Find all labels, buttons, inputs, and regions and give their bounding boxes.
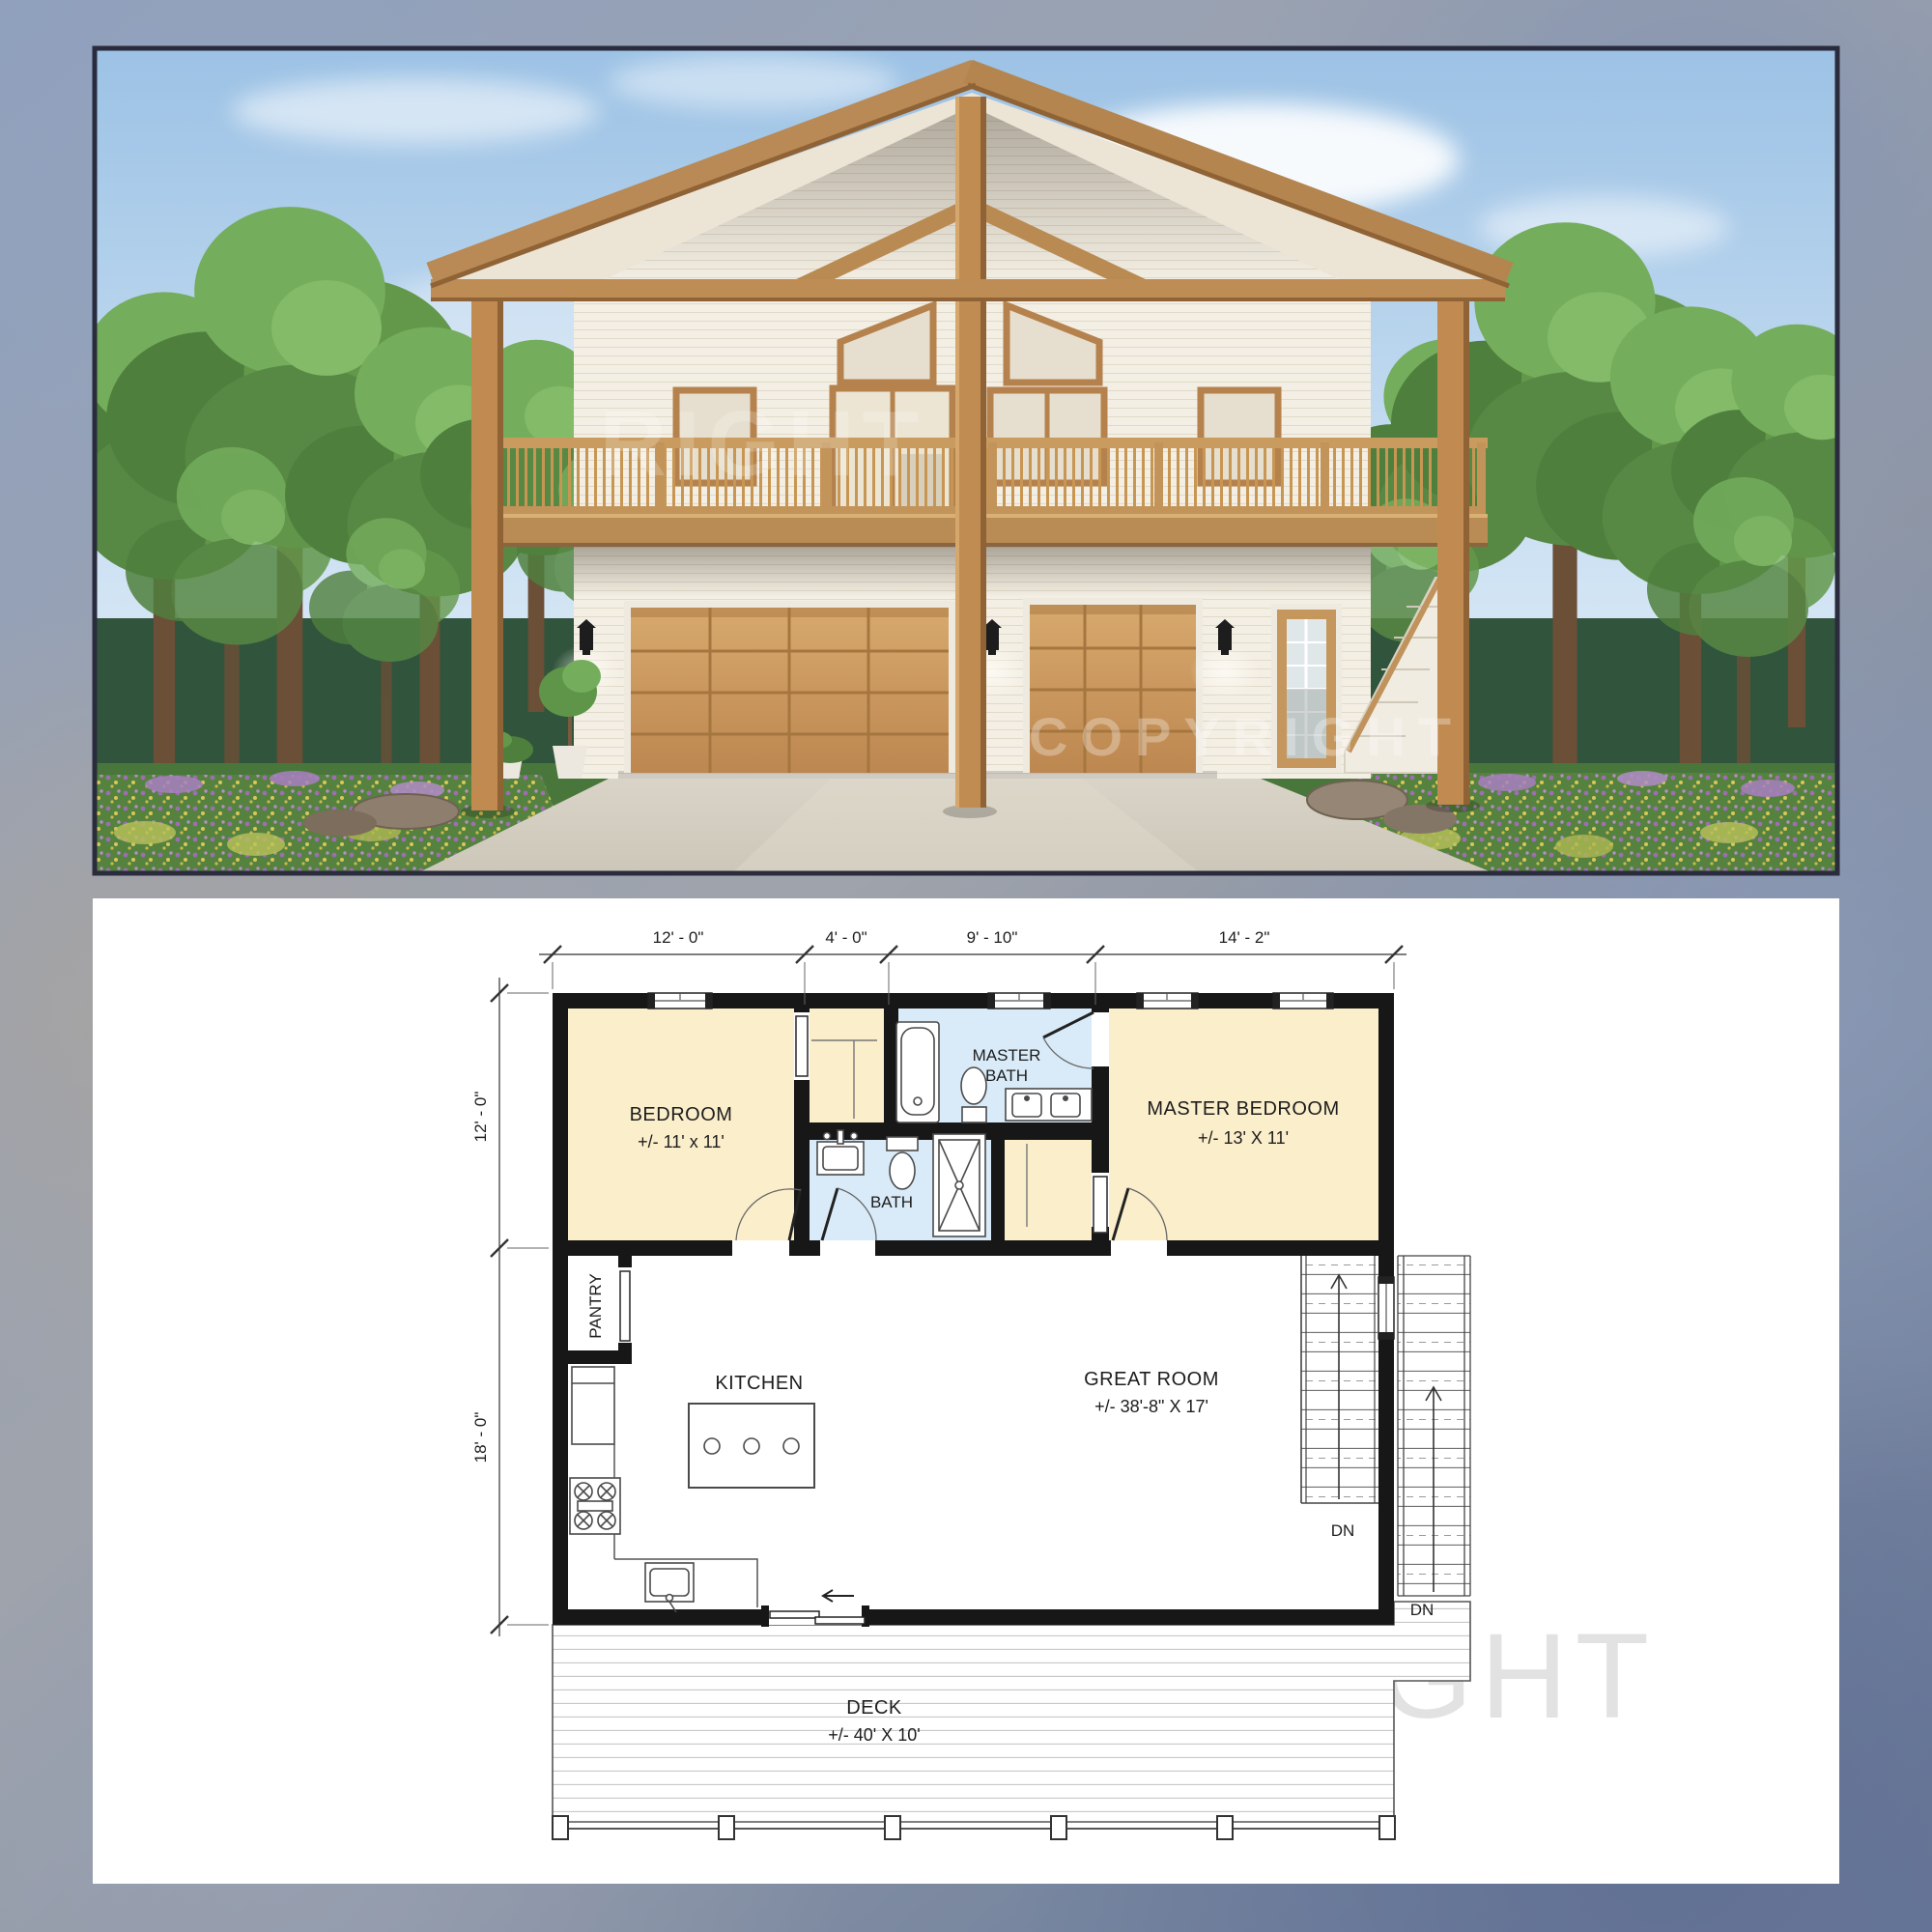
double-vanity-icon	[1006, 1089, 1092, 1121]
master-closet	[1005, 1140, 1092, 1240]
stairs-exterior	[1398, 1256, 1470, 1596]
room-size-bedroom: +/- 11' x 11'	[638, 1132, 724, 1151]
dim-label: 18' - 0"	[471, 1412, 490, 1463]
toilet-icon	[961, 1067, 986, 1122]
pocket-door	[796, 1016, 808, 1076]
stair-dn-label: DN	[1410, 1601, 1435, 1619]
listing-image: RIGHT COPYRIGHT COPYRIGHT	[0, 0, 1932, 1932]
watermark-text: RIGHT	[600, 392, 927, 496]
room-label-deck: DECK	[846, 1697, 902, 1719]
room-label-master-bath: BATH	[985, 1066, 1028, 1085]
room-label-master-bath: MASTER	[973, 1046, 1041, 1065]
room-label-pantry: PANTRY	[586, 1273, 605, 1338]
stairs-interior	[1301, 1256, 1378, 1503]
deck	[553, 1602, 1470, 1839]
room-label-master-bedroom: MASTER BEDROOM	[1147, 1098, 1339, 1120]
room-label-great-room: GREAT ROOM	[1084, 1369, 1219, 1390]
room-size-deck: +/- 40' X 10'	[828, 1725, 920, 1745]
dim-label: 12' - 0"	[471, 1092, 490, 1143]
watermark-text: COPYRIGHT	[1029, 706, 1463, 767]
floor-plan-panel: COPYRIGHT	[93, 898, 1839, 1884]
fridge-icon	[572, 1367, 614, 1444]
bath-sink-icon	[817, 1130, 864, 1175]
pocket-door	[1094, 1177, 1107, 1233]
dim-label: 4' - 0"	[825, 928, 867, 947]
bathtub-icon	[896, 1022, 939, 1122]
room-size-great-room: +/- 38'-8" X 17'	[1094, 1397, 1208, 1416]
dim-label: 9' - 10"	[967, 928, 1018, 947]
garage-door-left	[624, 601, 955, 773]
stair-dn-label: DN	[1331, 1521, 1355, 1540]
stove-icon	[570, 1478, 620, 1534]
room-label-kitchen: KITCHEN	[715, 1373, 803, 1394]
render-panel: RIGHT COPYRIGHT	[10, 48, 1917, 873]
dim-label: 14' - 2"	[1219, 928, 1270, 947]
room-label-bath: BATH	[870, 1193, 913, 1211]
toilet-icon	[887, 1137, 918, 1189]
dim-label: 12' - 0"	[653, 928, 704, 947]
bedroom-closet	[810, 1009, 884, 1122]
shower-icon	[933, 1134, 985, 1236]
kitchen-island	[689, 1404, 814, 1488]
room-label-bedroom: BEDROOM	[630, 1104, 733, 1125]
master-bedroom-room	[1109, 1009, 1378, 1240]
pantry-door	[620, 1271, 630, 1341]
room-size-master-bedroom: +/- 13' X 11'	[1198, 1128, 1289, 1148]
